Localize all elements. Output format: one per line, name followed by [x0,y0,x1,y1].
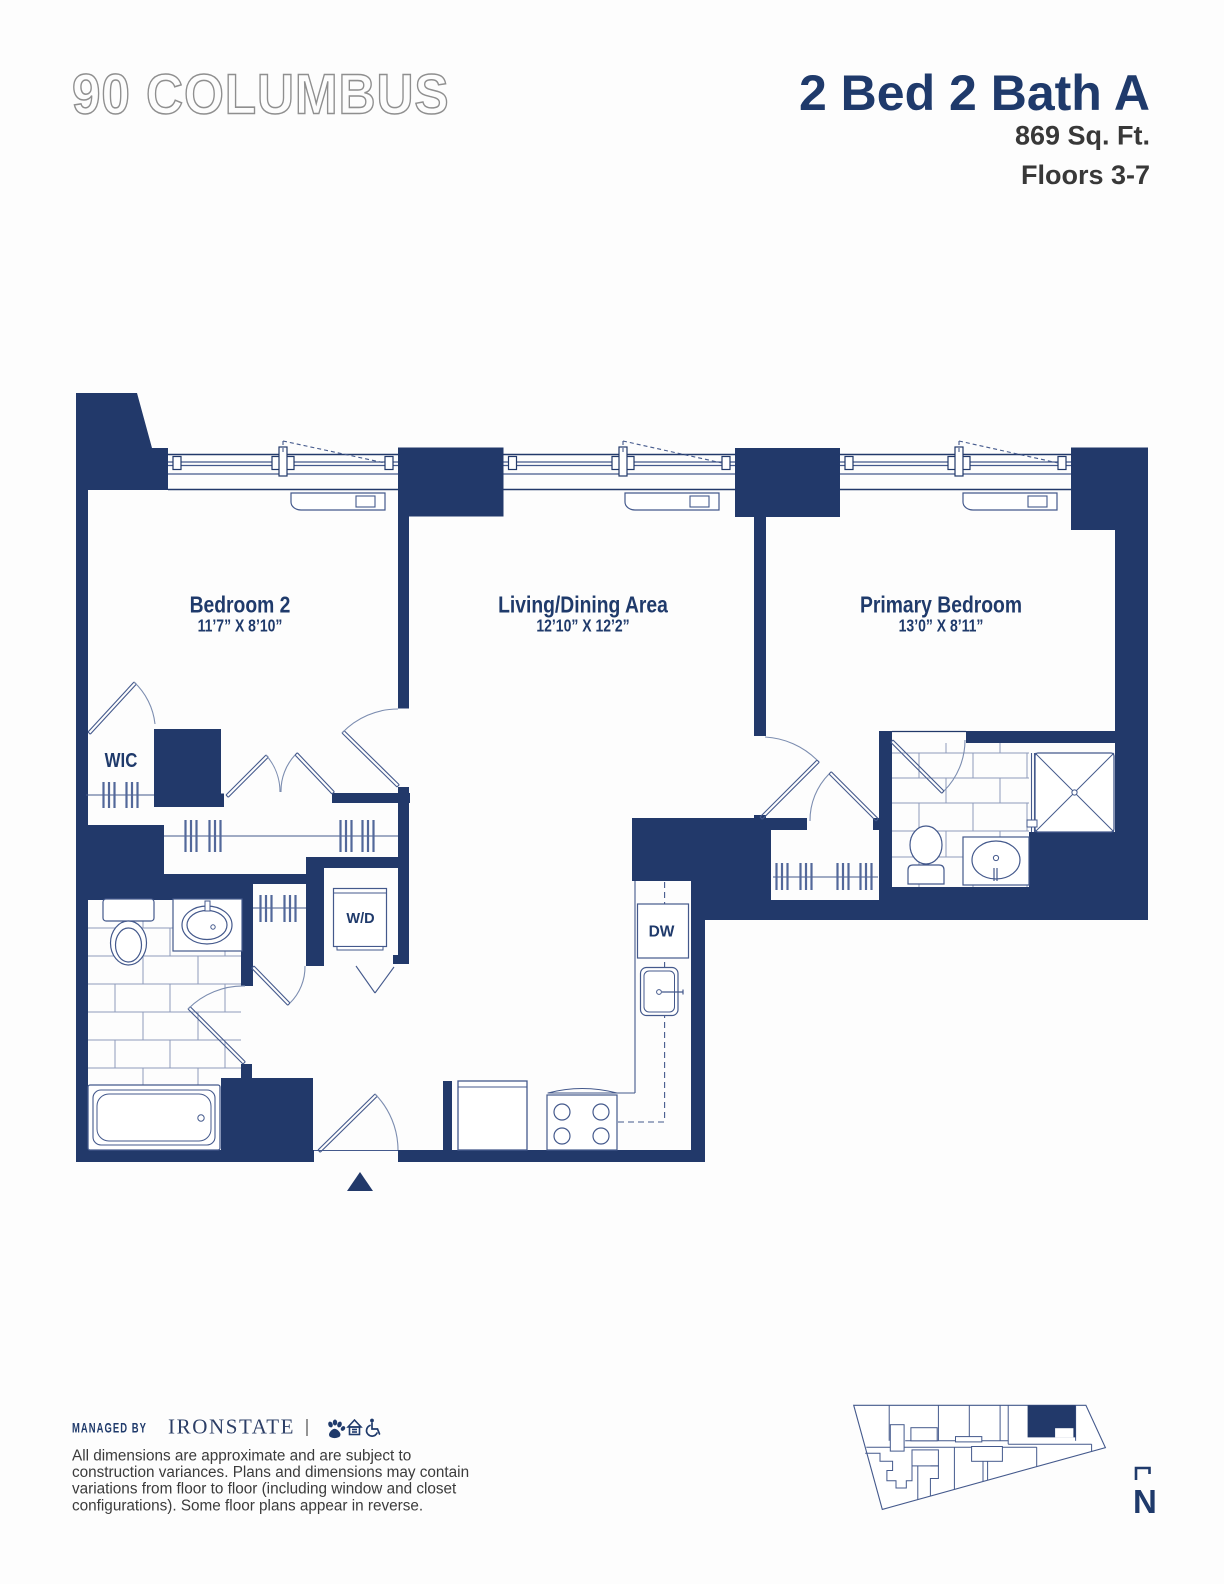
svg-text:13’0” X 8’11”: 13’0” X 8’11” [899,617,984,636]
svg-text:90 COLUMBUS: 90 COLUMBUS [72,63,450,126]
svg-text:variations from floor to floor: variations from floor to floor (includin… [72,1481,457,1498]
svg-text:W/D: W/D [346,911,374,927]
svg-text:11’7” X 8’10”: 11’7” X 8’10” [198,617,283,636]
svg-text:Bedroom 2: Bedroom 2 [190,593,291,618]
svg-text:WIC: WIC [105,748,138,771]
svg-text:Floors 3-7: Floors 3-7 [1021,160,1150,190]
svg-text:MANAGED BY: MANAGED BY [72,1421,147,1436]
svg-text:construction variances. Plans: construction variances. Plans and dimens… [72,1464,469,1481]
svg-text:IRONSTATE: IRONSTATE [168,1415,295,1439]
svg-text:N: N [1133,1483,1157,1520]
svg-text:Living/Dining Area: Living/Dining Area [498,593,668,618]
svg-text:2 Bed 2 Bath A: 2 Bed 2 Bath A [799,65,1150,121]
svg-text:DW: DW [649,924,675,941]
svg-text:12’10” X 12’2”: 12’10” X 12’2” [536,617,629,636]
svg-text:configurations). Some floor pl: configurations). Some floor plans appear… [72,1497,423,1514]
svg-text:Primary Bedroom: Primary Bedroom [860,593,1022,618]
svg-text:869 Sq. Ft.: 869 Sq. Ft. [1015,121,1150,151]
svg-text:All dimensions are approximate: All dimensions are approximate and are s… [72,1448,411,1465]
